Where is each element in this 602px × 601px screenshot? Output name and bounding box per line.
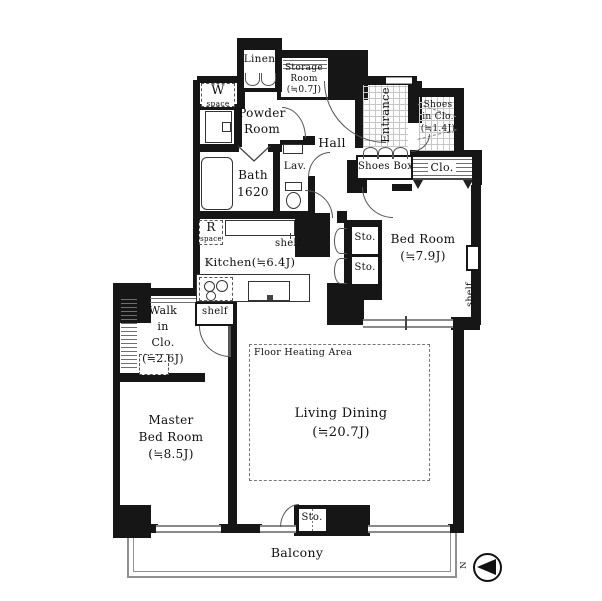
powder-line: Powder <box>231 105 293 121</box>
entrance-step <box>363 147 378 159</box>
sto-lower-label: Sto. <box>350 262 380 273</box>
bathtub <box>201 157 233 210</box>
bedroom-shelf-recess <box>466 245 480 271</box>
wic-line: in <box>134 319 192 335</box>
storage-line: Storage <box>278 63 330 74</box>
toilet-tank <box>285 182 302 191</box>
bath-label: Bath 1620 <box>230 167 276 201</box>
master-line: (≒8.5J) <box>121 446 221 463</box>
hanger-pipe-mark <box>463 180 473 189</box>
wall-segment <box>230 524 262 533</box>
front-door <box>386 77 412 84</box>
window-tick <box>405 316 407 330</box>
living-door <box>305 190 333 218</box>
shoes-box-label: Shoes Box <box>358 161 411 172</box>
wall-segment <box>193 211 310 219</box>
refrigerator-space-label: R space <box>199 221 223 245</box>
toilet-bowl <box>286 192 301 209</box>
wall-segment <box>392 184 412 191</box>
r-space-line: R <box>199 221 223 233</box>
storage-line: (≒0.7J) <box>278 85 330 96</box>
linen-door <box>245 73 260 86</box>
wall-segment <box>113 505 151 538</box>
wall-segment <box>113 288 120 538</box>
bedroom-line: Bed Room <box>384 231 462 248</box>
powder-line: Room <box>231 121 293 137</box>
wall-segment <box>453 325 464 532</box>
wic-shelf-label: shelf <box>195 306 235 317</box>
walk-in-closet-label: Walk in Clo. (≒2.6J) <box>134 303 192 367</box>
closet-bottom-line <box>413 178 472 180</box>
window-living-right <box>368 525 450 533</box>
compass-needle-icon <box>477 559 496 575</box>
living-line: (≒20.7J) <box>280 423 402 442</box>
wall-segment <box>327 283 364 325</box>
master-line: Master <box>121 412 221 429</box>
balcony-label: Balcony <box>263 545 331 560</box>
wic-line: Walk <box>134 303 192 319</box>
lav-door <box>308 152 330 177</box>
vanity-faucet <box>222 122 231 132</box>
hanger-pipe-mark <box>413 180 423 189</box>
shoes-clo-line: Shoes <box>415 99 461 111</box>
w-space-line: W <box>201 84 235 97</box>
wall-segment <box>276 50 332 58</box>
wall-segment <box>472 150 482 185</box>
washer-space-label: W space <box>201 84 235 110</box>
hall-label: Hall <box>310 135 354 150</box>
wall-segment <box>150 288 197 296</box>
burner <box>206 291 216 301</box>
lav-label: Lav. <box>279 160 311 172</box>
kitchen-shelf-leader <box>290 233 291 239</box>
lav-hand-basin <box>283 144 303 154</box>
compass <box>473 553 502 582</box>
kitchen-label: Kitchen(≒6.4J) <box>192 255 308 269</box>
wic-door <box>199 326 230 357</box>
wall-segment <box>410 150 474 157</box>
wall-segment <box>281 97 328 100</box>
bath-folding-door <box>237 145 271 163</box>
storage-room-label: Storage Room (≒0.7J) <box>278 63 330 96</box>
linen-label: Linen <box>243 53 276 65</box>
master-bedroom-label: Master Bed Room (≒8.5J) <box>121 412 221 463</box>
bedroom-label: Bed Room (≒7.9J) <box>384 231 462 265</box>
sto-upper-door <box>334 228 347 254</box>
burner <box>216 280 228 292</box>
wall-segment <box>295 213 330 257</box>
bedroom-line: (≒7.9J) <box>384 248 462 265</box>
sink-faucet <box>267 295 273 300</box>
bath-line: 1620 <box>230 184 276 201</box>
floor-plan: N Linen Storage Room (≒0.7J) W space Pow… <box>0 0 602 601</box>
sto-lower-door <box>334 258 347 284</box>
wic-line: (≒2.6J) <box>134 351 192 367</box>
window-bedroom-living <box>363 319 453 328</box>
compass-north-label: N <box>459 559 471 571</box>
wall-segment <box>193 144 239 152</box>
w-space-line: space <box>201 97 235 110</box>
powder-room-label: Powder Room <box>231 105 293 137</box>
front-door-swing <box>324 81 386 143</box>
r-space-line: space <box>199 233 223 245</box>
sto-balcony-label: Sto. <box>297 512 327 523</box>
entrance-step <box>378 147 393 159</box>
window-master-bedroom <box>156 525 221 533</box>
floor-heating-label: Floor Heating Area <box>254 347 374 358</box>
sto-upper-label: Sto. <box>350 232 380 243</box>
linen-door <box>261 73 276 86</box>
living-dining-label: Living Dining (≒20.7J) <box>280 404 402 442</box>
shoes-clo-line: (≒1.4J) <box>415 123 461 135</box>
shoes-clo-line: in Clo. <box>415 111 461 123</box>
bath-line: Bath <box>230 167 276 184</box>
closet-label: Clo. <box>428 161 456 174</box>
entrance-label: Entrance <box>378 86 392 144</box>
bedroom-door <box>362 187 393 218</box>
master-line: Bed Room <box>121 429 221 446</box>
wic-door-leaf <box>228 326 231 357</box>
shoes-in-closet-label: Shoes in Clo. (≒1.4J) <box>415 99 461 135</box>
storage-line: Room <box>278 74 330 85</box>
kitchen-back-counter <box>225 220 295 236</box>
wic-line: Clo. <box>134 335 192 351</box>
kitchen-shelf-label: shelf <box>268 238 308 249</box>
living-line: Living Dining <box>280 404 402 423</box>
entrance-step <box>393 147 408 159</box>
wall-segment <box>448 524 464 533</box>
bedroom-shelf-label: shelf <box>465 275 476 315</box>
